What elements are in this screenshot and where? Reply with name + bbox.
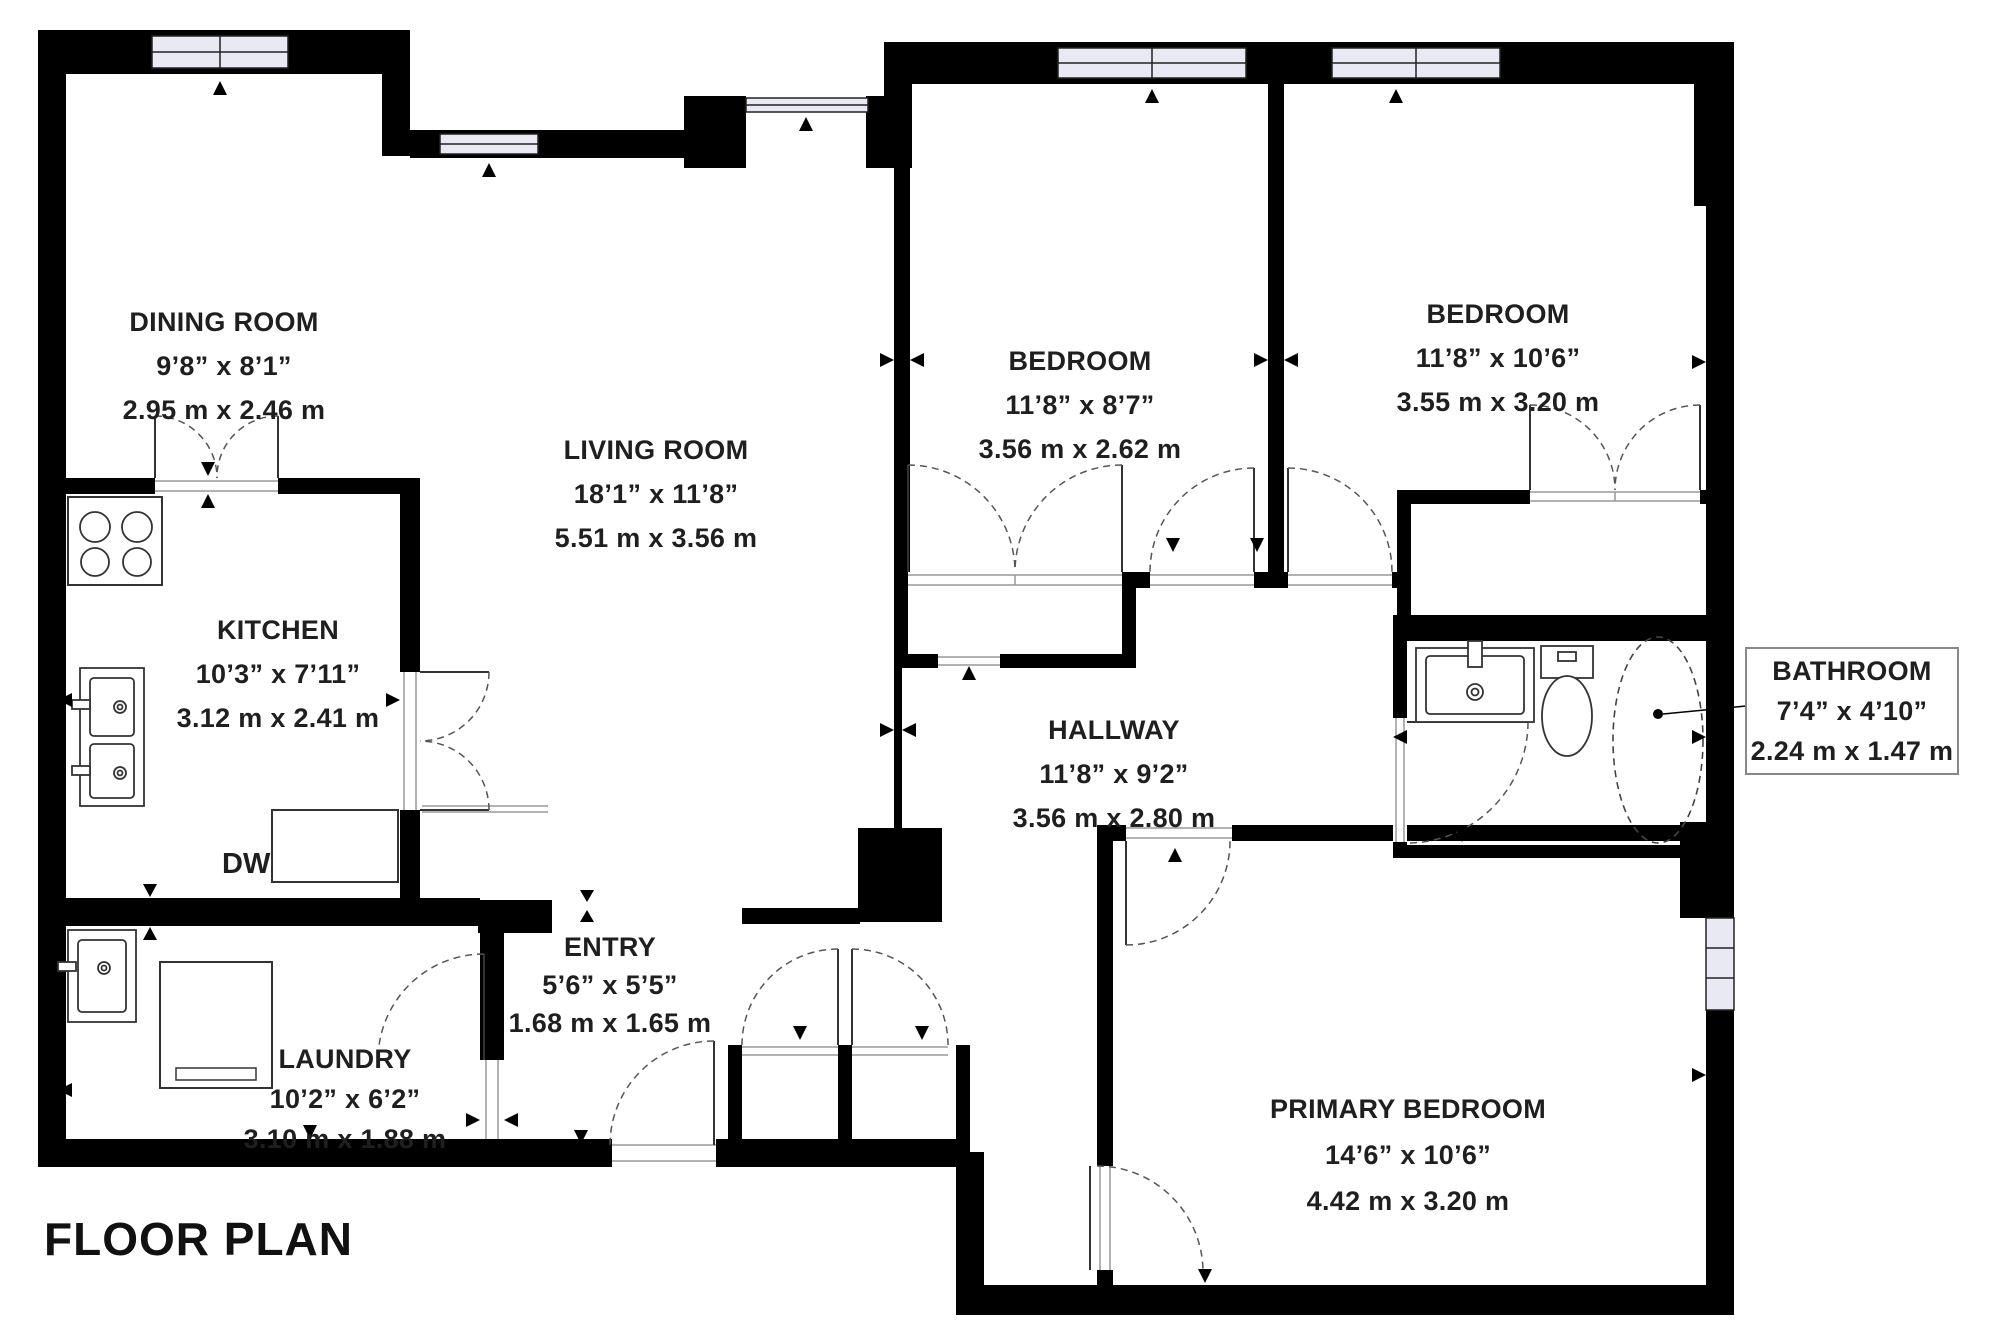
room-dim-imperial: 18’1” x 11’8” [555,472,758,516]
marker-closet2-door [915,1026,929,1040]
sill-bed2-closet [1530,490,1700,504]
label-living-room: LIVING ROOM 18’1” x 11’8” 5.51 m x 3.56 … [555,428,758,560]
marker-window-strip [799,117,813,131]
marker-living-bed1-b [910,353,924,367]
marker-window-bed2 [1389,89,1403,103]
marker-primary-door [1168,848,1182,862]
room-name: ENTRY [509,928,712,966]
room-dim-imperial: 7’4” x 4’10” [1751,691,1954,731]
marker-bed2-door [1250,538,1264,552]
marker-entry-a [580,890,594,902]
marker-bed1-bed2-b [1284,353,1298,367]
sill-hall-closet [938,654,1000,668]
label-dishwasher: DW [222,848,270,881]
room-dim-imperial: 9’8” x 8’1” [123,344,326,388]
sill-front-door [612,1139,716,1167]
marker-entry-b [580,910,594,922]
label-bathroom: BATHROOM 7’4” x 4’10” 2.24 m x 1.47 m [1751,651,1954,771]
marker-kitchen-top-b [201,494,215,508]
room-dim-imperial: 5’6” x 5’5” [509,966,712,1004]
sill-kitchen-top [155,478,278,494]
sill-bed1-closet [908,572,1122,588]
marker-kitchen-bottom-b [143,927,157,940]
window-primary [1706,918,1734,1010]
label-bedroom-right: BEDROOM 11’8” x 10’6” 3.55 m x 3.20 m [1397,292,1600,424]
room-name: DINING ROOM [123,300,326,344]
room-dim-imperial: 11’8” x 10’6” [1397,336,1600,380]
sill-kitchen-side [400,672,420,810]
room-name: BEDROOM [979,339,1182,383]
room-name: BEDROOM [1397,292,1600,336]
room-dim-metric: 3.56 m x 2.62 m [979,427,1182,471]
bathtub-icon [1613,637,1703,843]
marker-hall-divider-a [880,723,894,737]
room-name: PRIMARY BEDROOM [1258,1086,1558,1132]
window-living-strip [746,98,868,112]
marker-kitchen-top-a [201,462,215,476]
marker-bed1-bed2-a [1254,353,1268,367]
marker-kitchen-bottom-a [143,884,157,897]
label-bedroom-middle: BEDROOM 11’8” x 8’7” 3.56 m x 2.62 m [979,339,1182,471]
marker-bath-right [1692,730,1706,744]
window-bedroom-middle [1058,48,1246,78]
kitchen-sink-icon [72,668,144,806]
floor-plan-canvas: DINING ROOM 9’8” x 8’1” 2.95 m x 2.46 m … [0,0,2000,1335]
room-dim-metric: 3.10 m x 1.88 m [244,1119,447,1159]
room-name: BATHROOM [1751,651,1954,691]
marker-hall-divider-b [902,723,916,737]
sill-bed1-door [1150,572,1254,588]
window-dining [152,36,288,68]
room-name: HALLWAY [1013,708,1216,752]
room-dim-metric: 2.24 m x 1.47 m [1751,731,1954,771]
room-name: KITCHEN [177,608,380,652]
marker-bed2-right [1692,355,1706,369]
room-dim-metric: 1.68 m x 1.65 m [509,1004,712,1042]
marker-hall-closet [962,666,976,680]
label-hallway: HALLWAY 11’8” x 9’2” 3.56 m x 2.80 m [1013,708,1216,840]
room-dim-imperial: 11’8” x 8’7” [979,383,1182,427]
marker-kitchen-right [386,693,400,707]
marker-living-bed1-a [880,353,894,367]
label-primary-bedroom: PRIMARY BEDROOM 14’6” x 10’6” 4.42 m x 3… [1258,1086,1558,1224]
room-dim-metric: 3.12 m x 2.41 m [177,696,380,740]
window-living [440,134,538,154]
label-kitchen: KITCHEN 10’3” x 7’11” 3.12 m x 2.41 m [177,608,380,740]
marker-window-living [482,163,496,177]
floor-plan-title: FLOOR PLAN [44,1212,353,1266]
room-dim-imperial: 10’2” x 6’2” [244,1079,447,1119]
room-dim-metric: 2.95 m x 2.46 m [123,388,326,432]
marker-laundry-right-a [466,1113,480,1127]
marker-window-dining [213,81,227,95]
room-dim-metric: 4.42 m x 3.20 m [1258,1178,1558,1224]
marker-bed1-door [1166,538,1180,552]
label-entry: ENTRY 5’6” x 5’5” 1.68 m x 1.65 m [509,928,712,1042]
marker-primary-right [1692,1068,1706,1082]
sill-laundry-door [480,1060,504,1139]
room-dim-metric: 3.56 m x 2.80 m [1013,796,1216,840]
marker-primary-closet [1198,1269,1212,1283]
room-name: LIVING ROOM [555,428,758,472]
marker-closet1-door [793,1026,807,1040]
marker-laundry-right-b [504,1113,518,1127]
leader-dot [1653,709,1663,719]
sill-entry-closet-right [852,1045,948,1057]
room-dim-metric: 3.55 m x 3.20 m [1397,380,1600,424]
room-dim-imperial: 11’8” x 9’2” [1013,752,1216,796]
toilet-icon [1541,646,1593,756]
sill-bed2-door [1288,572,1392,588]
room-dim-imperial: 14’6” x 10’6” [1258,1132,1558,1178]
window-bedroom-right [1332,48,1500,78]
label-laundry: LAUNDRY 10’2” x 6’2” 3.10 m x 1.88 m [244,1039,447,1159]
sill-primary-closet [1097,1166,1113,1270]
room-dim-imperial: 10’3” x 7’11” [177,652,380,696]
room-name: LAUNDRY [244,1039,447,1079]
room-dim-metric: 5.51 m x 3.56 m [555,516,758,560]
marker-window-bed1 [1145,89,1159,103]
fixtures-layer [58,497,1703,1088]
bathroom-vanity-icon [1416,641,1534,722]
dishwasher-icon [272,810,398,882]
label-dining-room: DINING ROOM 9’8” x 8’1” 2.95 m x 2.46 m [123,300,326,432]
sill-entry-closet-left [742,1045,838,1057]
stove-icon [68,497,162,585]
laundry-sink-icon [58,930,136,1022]
